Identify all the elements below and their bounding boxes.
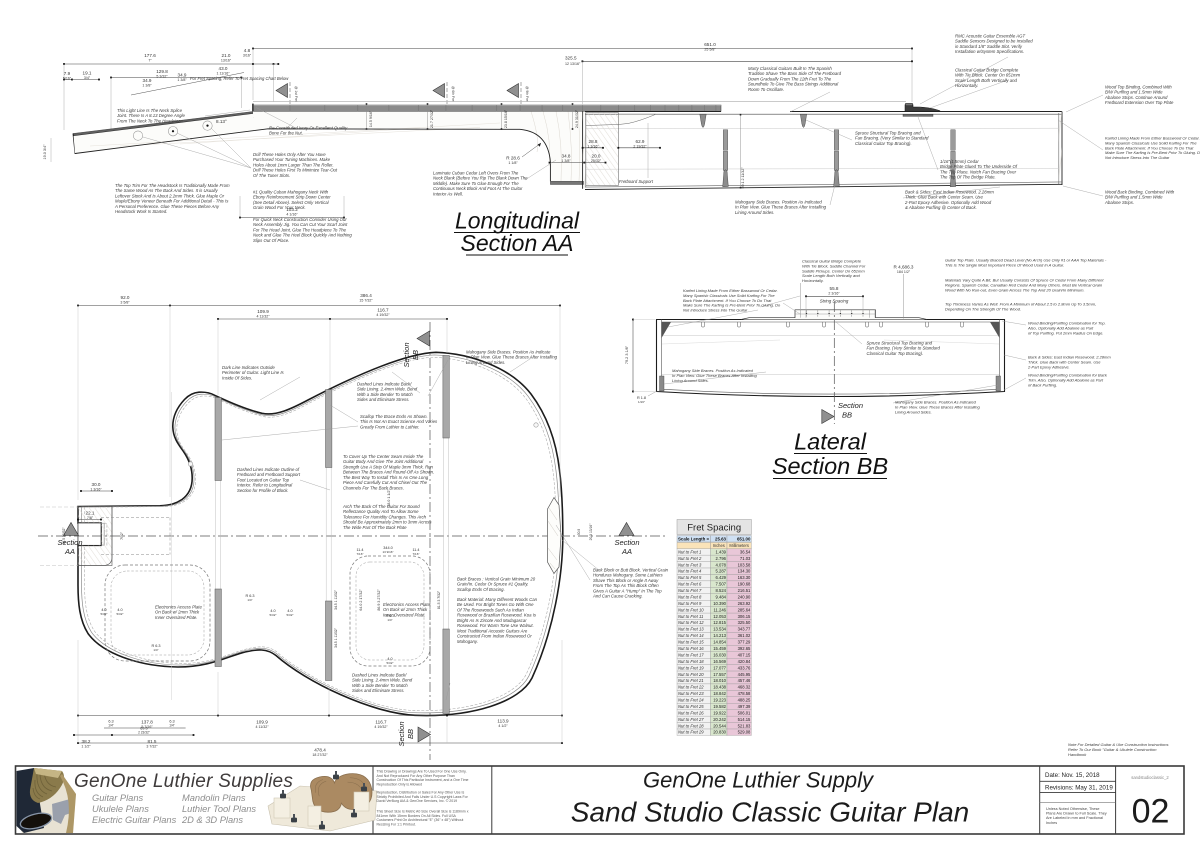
- svg-text:5/16": 5/16": [63, 76, 72, 80]
- svg-text:Plans Are Drawn to Full Scale.: Plans Are Drawn to Full Scale. They: [1046, 812, 1107, 816]
- svg-text:Slips Out Of Place.: Slips Out Of Place.: [253, 238, 289, 243]
- svg-text:Continuous Neck Block And Foot: Continuous Neck Block And Foot At The Gu…: [433, 186, 523, 191]
- svg-text:Grain Wood For Your Neck.: Grain Wood For Your Neck.: [253, 205, 306, 210]
- svg-text:Interior As Well.: Interior As Well.: [433, 192, 463, 197]
- svg-text:25 5/8": 25 5/8": [704, 47, 716, 51]
- svg-text:2D & 3D Plans: 2D & 3D Plans: [181, 815, 243, 825]
- svg-text:Saddle Sensors Designed to be: Saddle Sensors Designed to be Installed: [955, 39, 1033, 44]
- svg-text:Classical Guitar Top Bracing).: Classical Guitar Top Bracing).: [855, 141, 912, 146]
- svg-text:478.58: 478.58: [738, 691, 751, 696]
- svg-text:506.01: 506.01: [738, 710, 751, 715]
- svg-text:113.9: 113.9: [497, 719, 509, 724]
- svg-text:10.390: 10.390: [713, 601, 726, 606]
- svg-text:478.4: 478.4: [314, 748, 326, 753]
- svg-text:of Back Purfling.: of Back Purfling.: [1028, 382, 1057, 387]
- svg-text:3/16": 3/16": [243, 53, 252, 57]
- svg-text:34.5 1 11/32": 34.5 1 11/32": [334, 627, 338, 648]
- svg-text:306.15: 306.15: [738, 614, 751, 619]
- svg-text:Between The Braces And Round-O: Between The Braces And Round-Off As Show…: [343, 470, 434, 475]
- svg-text:2 19/32": 2 19/32": [633, 144, 647, 148]
- svg-text:137.8: 137.8: [141, 720, 153, 725]
- svg-text:Reflectance Quality And To All: Reflectance Quality And To Allow Some: [343, 509, 419, 514]
- svg-text:1 1/8": 1 1/8": [508, 161, 518, 165]
- svg-text:134.30: 134.30: [738, 569, 751, 574]
- svg-text:Handbook: Handbook: [1068, 752, 1087, 757]
- svg-text:Sides and Eliminate Stress.: Sides and Eliminate Stress.: [352, 688, 405, 693]
- svg-text:BB: BB: [411, 350, 420, 360]
- svg-text:6.429: 6.429: [716, 575, 727, 580]
- svg-text:30.0: 30.0: [92, 482, 101, 487]
- svg-text:Depending On The Strength Of T: Depending On The Strength Of The Wood.: [945, 306, 1021, 311]
- svg-text:Nut to Fret 29: Nut to Fret 29: [678, 730, 704, 735]
- svg-text:468.32: 468.32: [738, 685, 751, 690]
- svg-text:3 5/8": 3 5/8": [120, 300, 130, 304]
- svg-text:Piece And Carefully Cut And Ch: Piece And Carefully Cut And Chisel Out T…: [343, 480, 428, 485]
- svg-text:Lining Around Sides.: Lining Around Sides.: [735, 210, 775, 215]
- svg-text:B/W Purfling and 1.5mm Wide: B/W Purfling and 1.5mm Wide: [1105, 90, 1163, 95]
- svg-text:Headstock Work Is Started.: Headstock Work Is Started.: [115, 209, 167, 214]
- svg-text:263.92: 263.92: [738, 601, 751, 606]
- svg-text:Interior. Refer to Longitudina: Interior. Refer to Longitudinal: [237, 483, 293, 488]
- svg-text:The Wide Part Of The Back Plat: The Wide Part Of The Back Plate: [343, 525, 407, 530]
- svg-text:488.25: 488.25: [738, 698, 751, 703]
- svg-text:81.5: 81.5: [148, 739, 157, 744]
- svg-text:Nut to Fret 19: Nut to Fret 19: [678, 665, 704, 670]
- svg-text:36.54: 36.54: [740, 549, 751, 554]
- svg-text:18 27/32": 18 27/32": [312, 753, 328, 757]
- svg-text:Nut to Fret 25: Nut to Fret 25: [678, 704, 704, 709]
- svg-text:Luthier Tool Plans: Luthier Tool Plans: [182, 804, 256, 814]
- svg-text:21.0: 21.0: [222, 53, 231, 58]
- svg-text:Should Be Approximately 2mm to: Should Be Approximately 2mm to 3mm Acros…: [343, 520, 432, 525]
- svg-text:Nut to Fret 1: Nut to Fret 1: [678, 549, 701, 554]
- svg-text:15 7/32": 15 7/32": [359, 298, 373, 302]
- svg-text:Not Introduce Stress Into The: Not Introduce Stress Into The Guitar: [683, 308, 748, 313]
- svg-text:12.815: 12.815: [713, 620, 726, 625]
- svg-text:25/32": 25/32": [591, 159, 602, 163]
- svg-text:Section AA: Section AA: [461, 230, 574, 256]
- svg-text:Fretboard Support: Fretboard Support: [619, 179, 654, 184]
- svg-text:Bridge Plate Glued To The Unde: Bridge Plate Glued To The Underside Of: [940, 164, 1018, 169]
- svg-text:5/32": 5/32": [287, 613, 294, 617]
- svg-text:64.0 2 17/32": 64.0 2 17/32": [359, 589, 363, 611]
- svg-text:Are Labeled in mm and Fraction: Are Labeled in mm and Fractional: [1046, 816, 1103, 820]
- svg-text:Nut to Fret 8: Nut to Fret 8: [678, 594, 702, 599]
- svg-text:34.8: 34.8: [562, 154, 571, 159]
- svg-text:1 3/8": 1 3/8": [177, 78, 187, 82]
- svg-text:17.077: 17.077: [713, 665, 726, 670]
- svg-text:sandstudioclassic_2: sandstudioclassic_2: [1131, 775, 1169, 780]
- svg-text:19.223: 19.223: [713, 698, 726, 703]
- svg-text:Lining Around Sides.: Lining Around Sides.: [672, 378, 709, 383]
- svg-text:5/32": 5/32": [270, 613, 277, 617]
- svg-text:12.053: 12.053: [713, 614, 726, 619]
- svg-text:1 3/16": 1 3/16": [587, 144, 599, 148]
- svg-text:Nut to Fret 11: Nut to Fret 11: [678, 614, 703, 619]
- svg-text:Section BB: Section BB: [772, 453, 888, 479]
- svg-text:4 1/2": 4 1/2": [498, 724, 508, 728]
- svg-text:20.5 13/16": 20.5 13/16": [589, 523, 593, 541]
- svg-text:216.51: 216.51: [738, 588, 751, 593]
- svg-text:Nut to Fret 22: Nut to Fret 22: [678, 685, 704, 690]
- svg-text:14.213: 14.213: [713, 633, 726, 638]
- svg-text:Nut to Fret 9: Nut to Fret 9: [678, 601, 702, 606]
- svg-text:Perimeter of Guitar. Light Lin: Perimeter of Guitar. Light Line Is: [222, 370, 285, 375]
- svg-text:Sand Studio Classic Guitar Pla: Sand Studio Classic Guitar Plan: [571, 797, 969, 828]
- svg-text:34.9: 34.9: [143, 78, 152, 83]
- svg-text:521.83: 521.83: [738, 723, 751, 728]
- svg-text:Rosewood or Brazilian Rosewood: Rosewood or Brazilian Rosewood. Koa Is: [457, 613, 537, 618]
- svg-text:14.5 9/16": 14.5 9/16": [369, 110, 373, 127]
- svg-text:Section: Section: [402, 342, 411, 367]
- svg-text:Joint. There Is A 8.13 Degree: Joint. There Is A 8.13 Degree Angle: [116, 113, 185, 118]
- svg-text:445.95: 445.95: [738, 672, 751, 677]
- svg-text:Lining Around Sides.: Lining Around Sides.: [895, 409, 932, 414]
- svg-text:With Tie Block. Center On 651: With Tie Block. Center On 651mm: [955, 73, 1021, 78]
- svg-text:5/32": 5/32": [117, 612, 124, 616]
- svg-text:Inside Of Sides.: Inside Of Sides.: [222, 376, 252, 381]
- svg-text:129.8: 129.8: [156, 69, 168, 74]
- svg-text:361.02: 361.02: [738, 633, 751, 638]
- svg-text:109.9: 109.9: [256, 720, 268, 725]
- svg-text:Bone For the Nut.: Bone For the Nut.: [269, 131, 303, 136]
- svg-text:651.0: 651.0: [704, 42, 716, 47]
- svg-text:Fan Bracing. (Very Similar to: Fan Bracing. (Very Similar to Standard: [855, 136, 929, 141]
- svg-text:3/4": 3/4": [84, 76, 91, 80]
- svg-text:Nut to Fret 14: Nut to Fret 14: [678, 633, 704, 638]
- svg-text:4 1/16": 4 1/16": [286, 212, 298, 216]
- svg-text:Revisions: May 31, 2019: Revisions: May 31, 2019: [1045, 784, 1113, 791]
- svg-text:Side Lining. 2.4mm Wide. Bend: Side Lining. 2.4mm Wide. Bend: [357, 387, 418, 392]
- svg-text:And Can Cause Cracking.: And Can Cause Cracking.: [592, 594, 643, 599]
- svg-text:Neck Blank (Before You Rip The: Neck Blank (Before You Rip The Blank Dow…: [433, 176, 528, 181]
- svg-text:Nut to Fret 24: Nut to Fret 24: [678, 698, 704, 703]
- svg-text:Fretboard and Fretboard Suppor: Fretboard and Fretboard Support: [237, 472, 301, 477]
- svg-text:Resizing For 1:1 Printout.: Resizing For 1:1 Printout.: [377, 822, 417, 826]
- svg-text:7.507: 7.507: [716, 582, 727, 587]
- svg-text:386.4: 386.4: [360, 293, 372, 298]
- svg-text:18.438: 18.438: [713, 685, 726, 690]
- svg-text:116.7: 116.7: [377, 308, 389, 313]
- svg-text:4.8: 4.8: [244, 48, 251, 53]
- svg-text:25.63: 25.63: [715, 536, 727, 541]
- svg-text:Mandolin Plans: Mandolin Plans: [182, 793, 246, 803]
- svg-text:Date: Nov. 15, 2018: Date: Nov. 15, 2018: [1045, 772, 1100, 779]
- svg-text:177.6: 177.6: [144, 53, 156, 58]
- svg-text:1.439: 1.439: [716, 549, 727, 554]
- svg-text:In Plan View. Glue These Brace: In Plan View. Glue These Braces After In…: [466, 355, 558, 360]
- svg-text:Abalone Strips.: Abalone Strips.: [1104, 200, 1134, 205]
- svg-text:7/16": 7/16": [413, 552, 420, 556]
- svg-text:190.68: 190.68: [738, 582, 751, 587]
- svg-text:163.30: 163.30: [738, 575, 751, 580]
- svg-text:18.010: 18.010: [713, 678, 726, 683]
- svg-text:20.242: 20.242: [713, 717, 726, 722]
- svg-text:On Back w/ 2mm Thick: On Back w/ 2mm Thick: [383, 607, 428, 612]
- svg-text:19.922: 19.922: [713, 710, 726, 715]
- svg-text:13/16": 13/16": [221, 58, 232, 62]
- svg-text:2.796: 2.796: [716, 556, 727, 561]
- svg-text:Ukulele Plans: Ukulele Plans: [92, 804, 149, 814]
- svg-text:8.13°: 8.13°: [216, 119, 227, 124]
- svg-text:BB: BB: [406, 729, 415, 739]
- svg-text:92.0: 92.0: [121, 295, 130, 300]
- svg-text:Inches: Inches: [713, 543, 725, 548]
- svg-text:Nut to Fret 5: Nut to Fret 5: [678, 575, 702, 580]
- svg-text:Nut to Fret 10: Nut to Fret 10: [678, 607, 704, 612]
- svg-text:Unless Noted Otherwise, These: Unless Noted Otherwise, These: [1046, 807, 1100, 811]
- svg-text:AA: AA: [621, 547, 632, 556]
- svg-text:Ebony Reinforcement Strip Down: Ebony Reinforcement Strip Down Center: [253, 195, 331, 200]
- svg-text:Tradition Shave The Bass Side: Tradition Shave The Bass Side Of The Fre…: [748, 71, 842, 76]
- svg-text:514.15: 514.15: [738, 717, 751, 722]
- svg-text:81.5 3 7/32": 81.5 3 7/32": [437, 590, 441, 609]
- svg-text:Inner Oversized Plate.: Inner Oversized Plate.: [383, 613, 426, 618]
- svg-text:34.5 1 11/32": 34.5 1 11/32": [334, 589, 338, 610]
- svg-text:7.9: 7.9: [64, 71, 71, 76]
- svg-text:Nut to Fret 4: Nut to Fret 4: [678, 569, 702, 574]
- svg-text:@ 9th Fret: @ 9th Fret: [525, 86, 529, 102]
- svg-text:2-Part Epoxy Adhesive.: 2-Part Epoxy Adhesive.: [1027, 364, 1070, 369]
- svg-text:Nut to Fret 16: Nut to Fret 16: [678, 646, 704, 651]
- svg-text:14.854: 14.854: [713, 640, 726, 645]
- svg-text:On Back w/ 2mm Thick: On Back w/ 2mm Thick: [155, 610, 200, 615]
- svg-text:7/16": 7/16": [357, 552, 364, 556]
- svg-text:This Is Not An Exact Science A: This Is Not An Exact Science And Varies: [360, 419, 438, 424]
- svg-text:Channels For The Back Braces.: Channels For The Back Braces.: [343, 486, 404, 491]
- svg-text:59.1 2 11/32": 59.1 2 11/32": [741, 167, 745, 189]
- svg-text:02: 02: [1132, 793, 1170, 831]
- svg-text:Maple/Ebony Veneer Beneath For: Maple/Ebony Veneer Beneath For Additiona…: [115, 199, 229, 204]
- svg-text:Nut to Fret 20: Nut to Fret 20: [678, 672, 704, 677]
- svg-text:Greatly From Luthier to Luthie: Greatly From Luthier to Luthier.: [360, 425, 420, 430]
- svg-text:R 28.6: R 28.6: [506, 156, 520, 161]
- svg-text:Scale Length =: Scale Length =: [678, 536, 710, 541]
- svg-text:Classical Guitar Top Bracing).: Classical Guitar Top Bracing).: [867, 351, 924, 356]
- svg-text:497.39: 497.39: [738, 704, 751, 709]
- svg-text:This Is The Single Most Import: This Is The Single Most Important Piece …: [945, 262, 1064, 267]
- svg-text:34.9: 34.9: [178, 73, 187, 78]
- svg-text:4 11/32": 4 11/32": [257, 314, 271, 318]
- svg-text:4 11/32": 4 11/32": [256, 725, 270, 729]
- svg-text:5.287: 5.287: [716, 569, 727, 574]
- svg-text:11.246: 11.246: [714, 607, 727, 612]
- svg-text:Guitar Body And Give The Joint: Guitar Body And Give The Joint Additiona…: [343, 459, 424, 464]
- svg-text:1/4": 1/4": [387, 618, 392, 622]
- svg-text:16.030: 16.030: [713, 652, 726, 657]
- svg-text:Purchased Your Tuning Machines: Purchased Your Tuning Machines. Make: [253, 157, 331, 162]
- svg-text:Honduras Mahogany. Some Luthie: Honduras Mahogany. Some Luthiers: [593, 573, 664, 578]
- svg-text:18.842: 18.842: [713, 691, 726, 696]
- svg-text:Fan Bracing. (Very Similar to: Fan Bracing. (Very Similar to Standard: [867, 346, 941, 351]
- svg-text:17.557: 17.557: [713, 672, 726, 677]
- svg-text:5/32": 5/32": [101, 612, 108, 616]
- svg-text:Nut to Fret 18: Nut to Fret 18: [678, 659, 704, 664]
- svg-text:7/32": 7/32": [120, 531, 124, 540]
- svg-text:Not Introduce Stress Into The: Not Introduce Stress Into The Guitar: [1105, 155, 1170, 160]
- svg-text:4 19/32": 4 19/32": [376, 313, 390, 317]
- svg-text:43.0: 43.0: [219, 66, 228, 71]
- svg-text:55.8: 55.8: [830, 286, 839, 291]
- svg-text:For Fret Spacing, Refer To Fre: For Fret Spacing, Refer To Fret Spacing …: [190, 76, 289, 81]
- svg-text:Section: Section: [838, 401, 863, 410]
- svg-text:Nut to Fret 23: Nut to Fret 23: [678, 691, 704, 696]
- svg-text:Section for Profile of Block.: Section for Profile of Block.: [237, 488, 289, 493]
- svg-text:Fret Spacing: Fret Spacing: [687, 523, 741, 534]
- svg-text:19.582: 19.582: [713, 704, 726, 709]
- svg-text:4.078: 4.078: [716, 562, 727, 567]
- svg-text:71.03: 71.03: [740, 556, 751, 561]
- svg-text:1 11/16": 1 11/16": [217, 71, 231, 75]
- svg-text:Nut to Fret 6: Nut to Fret 6: [678, 582, 702, 587]
- svg-text:Scallop Ends Of Bracing.: Scallop Ends Of Bracing.: [457, 587, 505, 592]
- svg-text:@ 6th Fret: @ 6th Fret: [451, 86, 455, 102]
- svg-text:19.0 3/4": 19.0 3/4": [43, 144, 47, 160]
- svg-text:62.9: 62.9: [636, 139, 645, 144]
- svg-text:2 23/32": 2 23/32": [138, 731, 150, 735]
- svg-text:1 3/8": 1 3/8": [142, 83, 152, 87]
- svg-text:325.5: 325.5: [565, 56, 577, 61]
- svg-text:1 1/2": 1 1/2": [81, 744, 91, 748]
- svg-text:407.15: 407.15: [738, 652, 751, 657]
- svg-text:28.8: 28.8: [589, 139, 598, 144]
- svg-text:1/16": 1/16": [638, 400, 645, 404]
- svg-text:Nut to Fret 28: Nut to Fret 28: [678, 723, 704, 728]
- svg-text:Nut to Fret 26: Nut to Fret 26: [678, 710, 704, 715]
- svg-text:Guitar Plans: Guitar Plans: [92, 793, 144, 803]
- svg-text:Nut to Fret 27: Nut to Fret 27: [678, 717, 704, 722]
- svg-text:109.9: 109.9: [257, 309, 269, 314]
- svg-text:Neck Assembly Jig. You Can Cut: Neck Assembly Jig. You Can Cut Your Scar…: [253, 222, 348, 227]
- svg-text:Nut to Fret 12: Nut to Fret 12: [678, 620, 704, 625]
- svg-text:Nut to Fret 21: Nut to Fret 21: [678, 678, 704, 683]
- svg-text:19.1: 19.1: [83, 71, 92, 76]
- svg-text:Reproduction Only is Allowed: Reproduction Only is Allowed: [377, 782, 423, 786]
- svg-text:Nut to Fret 3: Nut to Fret 3: [678, 562, 702, 567]
- svg-text:285.64: 285.64: [738, 607, 751, 612]
- svg-text:4 19/32": 4 19/32": [374, 725, 388, 729]
- svg-text:David VerBurg AIA & GenOne Ser: David VerBurg AIA & GenOne Services, Inc…: [377, 799, 458, 803]
- svg-text:38.2: 38.2: [82, 739, 91, 744]
- svg-text:B/W Purfling and 1.5mm Wide: B/W Purfling and 1.5mm Wide: [1105, 195, 1163, 200]
- svg-text:GenOne Luthier Supplies: GenOne Luthier Supplies: [74, 771, 293, 792]
- svg-text:5/32": 5/32": [387, 661, 394, 665]
- svg-text:The Top Of The Bridge Plate.: The Top Of The Bridge Plate.: [940, 175, 996, 180]
- svg-text:3 7/32": 3 7/32": [146, 744, 158, 748]
- svg-text:Nut to Fret 2: Nut to Fret 2: [678, 556, 702, 561]
- svg-text:R 4,686.3: R 4,686.3: [894, 265, 914, 270]
- svg-text:& Abalone Purfling @ Center of: & Abalone Purfling @ Center of Back.: [905, 205, 977, 210]
- svg-text:Nut to Fret 13: Nut to Fret 13: [678, 627, 704, 632]
- svg-text:Nut to Fret 7: Nut to Fret 7: [678, 588, 702, 593]
- svg-text:184 1/2": 184 1/2": [897, 270, 911, 274]
- svg-text:Lining Around Sides.: Lining Around Sides.: [466, 360, 506, 365]
- svg-text:Horizontally.: Horizontally.: [955, 83, 978, 88]
- svg-text:13 9/16": 13 9/16": [382, 550, 393, 554]
- svg-text:Drill These Holes First To Min: Drill These Holes First To Minimize Tear…: [253, 168, 338, 173]
- svg-text:377.29: 377.29: [738, 640, 751, 645]
- svg-text:1 3/16": 1 3/16": [90, 487, 102, 491]
- svg-text:Room To Oscillate.: Room To Oscillate.: [748, 87, 784, 92]
- svg-text:21.7 27/32": 21.7 27/32": [430, 109, 434, 128]
- svg-text:Side Lining. 2.4mm Wide. Bend: Side Lining. 2.4mm Wide. Bend: [352, 678, 413, 683]
- svg-text:AA: AA: [64, 547, 75, 556]
- svg-text:13.534: 13.534: [713, 627, 726, 632]
- svg-text:Wood With No Run-out, Even Gra: Wood With No Run-out, Even Grain Across …: [945, 287, 1085, 292]
- svg-text:GenOne Luthier Supply: GenOne Luthier Supply: [643, 768, 875, 793]
- svg-text:From The Neck To The Headpiece: From The Neck To The Headpiece: [117, 119, 183, 124]
- svg-text:Fretboard Extension Over Top P: Fretboard Extension Over Top Plate: [1105, 100, 1174, 105]
- svg-text:Soundhole To Give The Bass Str: Soundhole To Give The Bass Strings Addit…: [748, 82, 839, 87]
- svg-text:16.569: 16.569: [713, 659, 726, 664]
- svg-text:Grain/In. Cedar Or Spruce #1 Q: Grain/In. Cedar Or Spruce #1 Quality.: [457, 582, 529, 587]
- svg-text:Constructed From Indian Rosewo: Constructed From Indian Rosewood Or: [457, 634, 532, 639]
- svg-text:Electric Guitar Plans: Electric Guitar Plans: [92, 815, 177, 825]
- svg-text:Installation w/System Specific: Installation w/System Specifications.: [955, 49, 1024, 54]
- svg-text:1/4": 1/4": [108, 724, 114, 728]
- svg-text:2 3/16": 2 3/16": [828, 292, 840, 296]
- svg-text:Inches: Inches: [1046, 821, 1057, 825]
- svg-text:From The Top As This Block Oft: From The Top As This Block Often: [593, 583, 659, 588]
- svg-text:Sides and Eliminate Stress.: Sides and Eliminate Stress.: [357, 397, 410, 402]
- svg-text:Millimeters: Millimeters: [729, 543, 749, 548]
- svg-text:529.08: 529.08: [738, 730, 751, 735]
- svg-text:7/8": 7/8": [87, 516, 94, 520]
- svg-text:20.830: 20.830: [713, 730, 726, 735]
- svg-text:1/4": 1/4": [169, 724, 175, 728]
- svg-text:103.58: 103.58: [738, 562, 751, 567]
- svg-text:30.9: 30.9: [577, 529, 581, 536]
- svg-text:392.65: 392.65: [738, 646, 751, 651]
- svg-text:In Plan View. Glue These Brace: In Plan View. Glue These Braces After In…: [735, 205, 827, 210]
- svg-text:Of The Tuner Slots.: Of The Tuner Slots.: [253, 173, 290, 178]
- svg-text:420.84: 420.84: [738, 659, 751, 664]
- svg-text:Nut to Fret 15: Nut to Fret 15: [678, 640, 704, 645]
- svg-text:343.77: 343.77: [738, 627, 751, 632]
- svg-text:116.7: 116.7: [375, 720, 387, 725]
- svg-text:1 3/8": 1 3/8": [561, 159, 571, 163]
- svg-text:Inner Oversized Plate.: Inner Oversized Plate.: [155, 615, 198, 620]
- svg-text:Neck and Glue The Heel Block Q: Neck and Glue The Heel Block Quickly And…: [253, 233, 352, 238]
- svg-text:457.46: 457.46: [738, 678, 751, 683]
- svg-text:20.0: 20.0: [592, 154, 601, 159]
- svg-text:20.544: 20.544: [713, 723, 726, 728]
- svg-text:Section: Section: [614, 538, 639, 547]
- svg-text:86.9 3 27/32": 86.9 3 27/32": [377, 589, 381, 611]
- svg-text:1/4": 1/4": [153, 648, 158, 652]
- svg-text:22.1: 22.1: [86, 511, 95, 516]
- svg-text:Rosewood. For Warm Tone Use Wa: Rosewood. For Warm Tone Use Walnut.: [457, 623, 534, 628]
- svg-text:79.2 3 1/8": 79.2 3 1/8": [625, 345, 629, 364]
- svg-text:BB: BB: [842, 411, 852, 420]
- svg-text:15.459: 15.459: [713, 646, 726, 651]
- svg-text:240.90: 240.90: [738, 594, 751, 599]
- svg-text:651.00: 651.00: [737, 536, 751, 541]
- svg-text:Thick. Glue Back with Center S: Thick. Glue Back with Center Seam. Use: [905, 195, 983, 200]
- svg-text:5 3/32": 5 3/32": [156, 74, 168, 78]
- svg-text:9.484: 9.484: [716, 594, 727, 599]
- svg-text:433.76: 433.76: [738, 665, 751, 670]
- svg-text:10.5 13/32": 10.5 13/32": [62, 527, 66, 545]
- svg-text:1/4": 1/4": [247, 598, 252, 602]
- svg-text:12 13/16": 12 13/16": [565, 62, 581, 66]
- svg-text:24.9 31/32": 24.9 31/32": [575, 109, 579, 128]
- svg-text:@ 1st Fret: @ 1st Fret: [294, 86, 298, 102]
- svg-text:Lateral: Lateral: [794, 429, 867, 455]
- svg-text:The Same Wood As The Back And: The Same Wood As The Back And Sides. It …: [115, 188, 218, 193]
- svg-text:Nut to Fret 17: Nut to Fret 17: [678, 652, 704, 657]
- svg-text:of Top Purfling. Put 2mm Radiu: of Top Purfling. Put 2mm Radius On Edge.: [1028, 330, 1103, 335]
